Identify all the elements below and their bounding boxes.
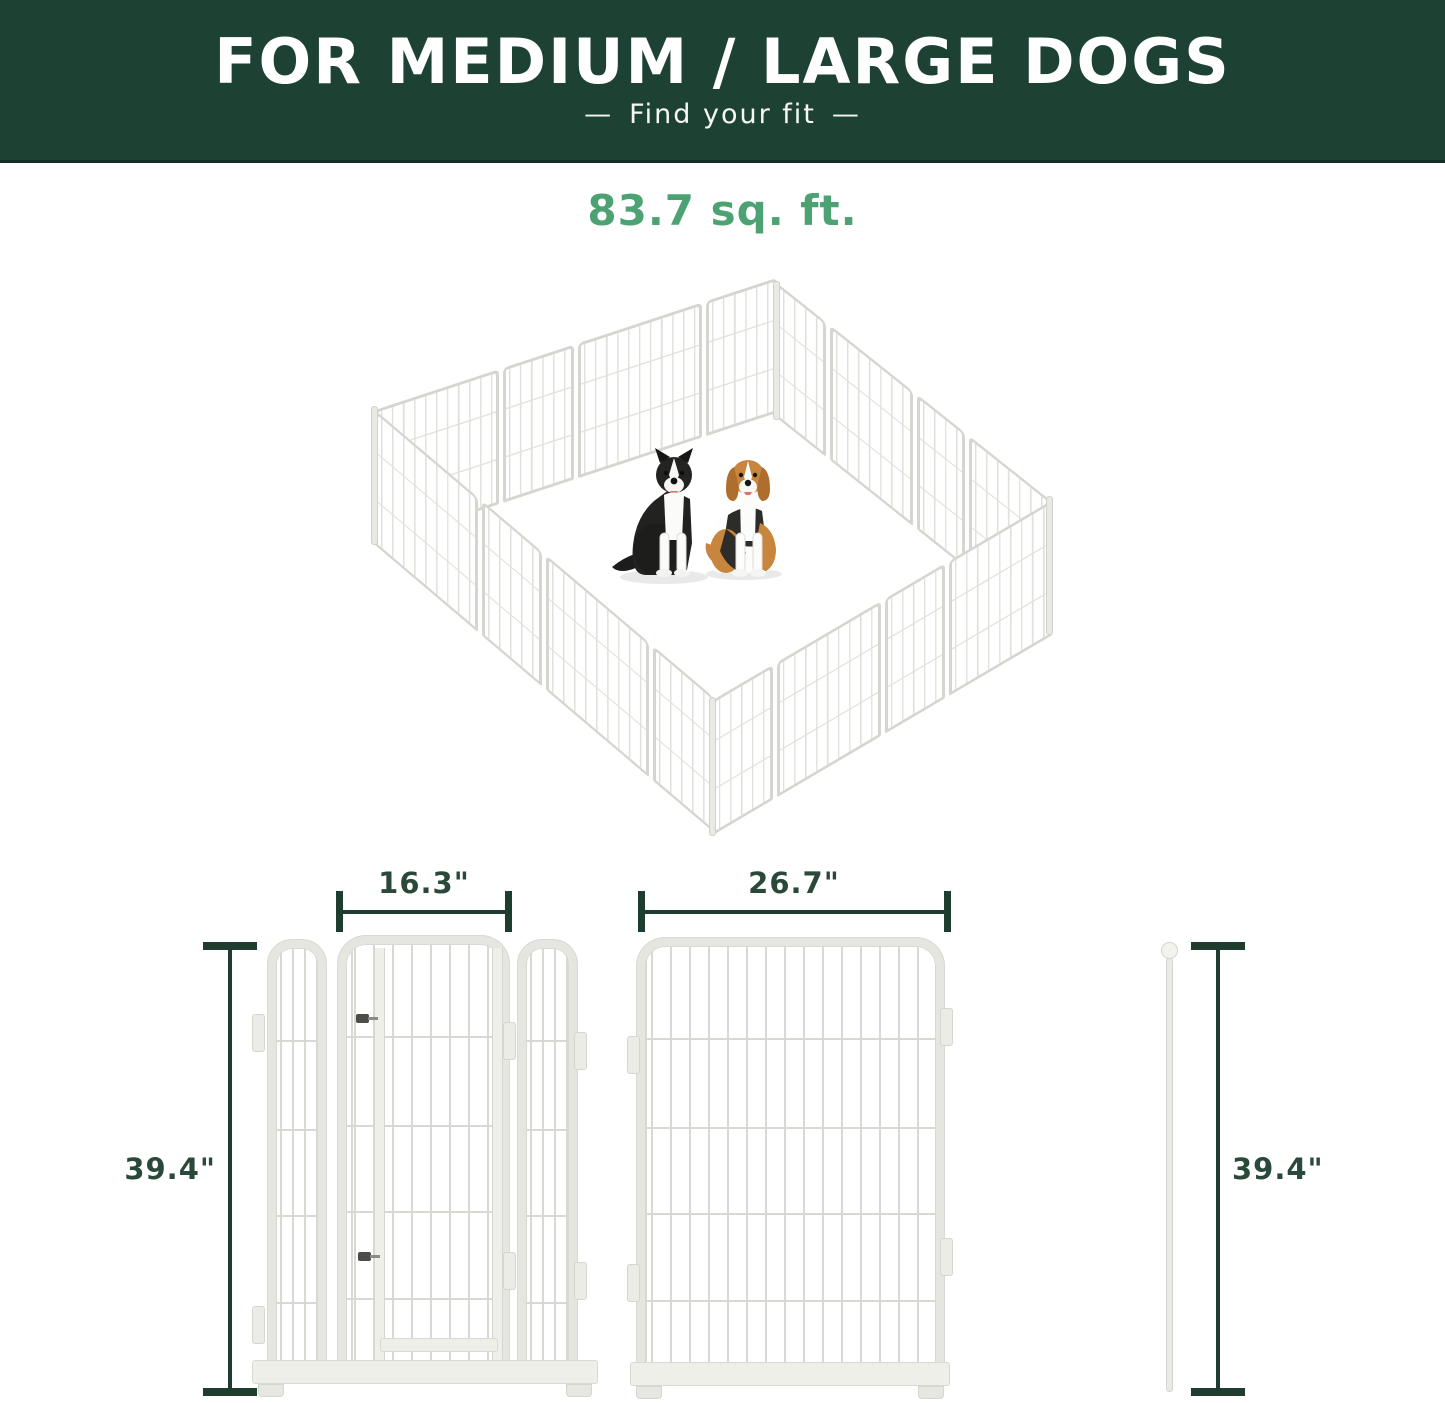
side-panel-drawing xyxy=(518,940,577,1381)
dimension-line xyxy=(641,910,947,914)
playpen-panel xyxy=(482,501,542,687)
dimension-cap xyxy=(505,891,512,932)
connector-tab xyxy=(940,1238,953,1276)
dimension-line xyxy=(339,910,509,914)
playpen-panel xyxy=(503,345,574,503)
dash-right: — xyxy=(832,99,861,130)
side-panel-drawing xyxy=(268,940,326,1381)
dimension-line xyxy=(1216,948,1220,1390)
dash-left: — xyxy=(584,99,613,130)
gate-base-bar xyxy=(252,1360,598,1384)
stake-rod xyxy=(1166,958,1173,1392)
header-banner: FOR MEDIUM / LARGE DOGS — Find your fit … xyxy=(0,0,1445,163)
area-size-label: 83.7 sq. ft. xyxy=(0,186,1445,235)
playpen-panel xyxy=(713,665,773,835)
product-infographic: FOR MEDIUM / LARGE DOGS — Find your fit … xyxy=(0,0,1445,1403)
playpen-panel xyxy=(706,278,777,436)
playpen-panel xyxy=(777,601,880,797)
connector-tab xyxy=(574,1262,587,1300)
connector-tab xyxy=(503,1022,516,1060)
panel-foot xyxy=(258,1384,284,1397)
dimension-cap xyxy=(203,1388,257,1396)
beagle-illustration xyxy=(706,460,776,577)
subtitle-text: Find your fit xyxy=(629,99,816,130)
connector-tab xyxy=(252,1014,265,1052)
playpen-panel xyxy=(830,325,913,526)
panel-width-label: 26.7" xyxy=(641,866,947,900)
gate-door-bottom-rail xyxy=(380,1338,498,1352)
dimension-cap xyxy=(1191,1388,1245,1396)
gate-frame-drawing xyxy=(338,936,509,1382)
gate-latch xyxy=(358,1252,371,1261)
large-panel-frame xyxy=(637,938,944,1374)
connector-tab xyxy=(252,1306,265,1344)
panel-foot xyxy=(566,1384,592,1397)
panel-height-label: 39.4" xyxy=(1232,1152,1324,1186)
dimension-cap xyxy=(203,942,257,950)
playpen-panel xyxy=(885,564,945,734)
dimension-cap xyxy=(944,891,951,932)
connector-tab xyxy=(627,1036,640,1074)
dimension-line xyxy=(228,948,232,1390)
playpen-panel xyxy=(777,283,826,457)
playpen-panel xyxy=(653,646,713,832)
banner-title: FOR MEDIUM / LARGE DOGS xyxy=(214,31,1231,93)
stake-ball-top xyxy=(1161,942,1178,959)
dimension-cap xyxy=(638,891,645,932)
playpen-corner-post xyxy=(1046,496,1053,635)
panel-base-bar xyxy=(630,1362,950,1386)
playpen-corner-post xyxy=(709,697,716,836)
connector-tab xyxy=(627,1264,640,1302)
dimension-cap xyxy=(336,891,343,932)
connector-tab xyxy=(940,1008,953,1046)
playpen-corner-post xyxy=(773,281,780,420)
gate-door-stile xyxy=(492,948,503,1368)
playpen-corner-post xyxy=(371,406,378,545)
panel-foot xyxy=(636,1386,662,1399)
border-collie-illustration xyxy=(612,448,693,577)
gate-height-label: 39.4" xyxy=(120,1152,216,1186)
panel-foot xyxy=(918,1386,944,1399)
connector-tab xyxy=(574,1032,587,1070)
connector-tab xyxy=(503,1252,516,1290)
dogs-illustration xyxy=(608,445,798,590)
gate-width-label: 16.3" xyxy=(339,866,509,900)
banner-subtitle: — Find your fit — xyxy=(584,99,861,130)
dimension-cap xyxy=(1191,942,1245,950)
gate-door-stile xyxy=(374,948,385,1368)
playpen-panel xyxy=(917,394,966,568)
gate-latch xyxy=(356,1014,369,1023)
